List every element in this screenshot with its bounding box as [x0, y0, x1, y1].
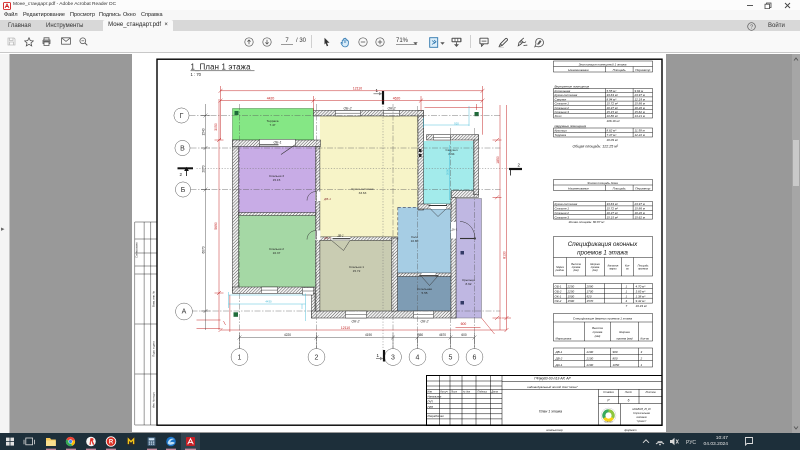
svg-text:1: 1: [640, 363, 642, 367]
svg-text:Инв. № подл.: Инв. № подл.: [151, 392, 155, 408]
svg-text:ОБ-1: ОБ-1: [554, 285, 561, 289]
svg-text:Жилая площадь дома: Жилая площадь дома: [586, 181, 618, 185]
svg-text:2070: 2070: [201, 165, 205, 172]
svg-text:Спецификация дверных проемов 1: Спецификация дверных проемов 1 этажа: [572, 317, 632, 321]
svg-text:1570: 1570: [586, 299, 593, 303]
svg-text:ДВ-1: ДВ-1: [323, 197, 331, 201]
svg-text:3050: 3050: [214, 123, 218, 131]
svg-text:проема (мм): проема (мм): [616, 337, 632, 341]
svg-text:(мм): (мм): [592, 269, 597, 272]
svg-text:Б: Б: [180, 187, 185, 194]
svg-text:ОБ-2: ОБ-2: [343, 106, 351, 110]
svg-text:Спальня 3: Спальня 3: [554, 215, 569, 219]
svg-text:?: ?: [750, 24, 753, 30]
svg-text:ОК-1: ОК-1: [554, 294, 561, 298]
svg-text:4220: 4220: [283, 333, 290, 337]
svg-text:15.72 м²: 15.72 м²: [606, 207, 618, 211]
svg-text:4670: 4670: [438, 333, 445, 337]
svg-text:4.70 м²: 4.70 м²: [635, 285, 646, 289]
svg-text:марки: марки: [609, 268, 617, 271]
svg-text:3.83 м²: 3.83 м²: [635, 289, 646, 293]
svg-text:Подп. и дата: Подп. и дата: [151, 341, 155, 357]
svg-text:Периметр: Периметр: [635, 186, 650, 190]
svg-text:План 1 этажа: План 1 этажа: [538, 410, 561, 414]
svg-text:5.55: 5.55: [421, 291, 427, 295]
svg-text:R: R: [109, 440, 114, 446]
svg-text:900: 900: [612, 350, 617, 354]
svg-text:во: во: [626, 268, 629, 271]
svg-text:Внутренние помещения: Внутренние помещения: [554, 84, 589, 88]
svg-text:4190: 4190: [364, 333, 371, 337]
svg-text:Площадь: Площадь: [612, 186, 625, 190]
svg-text:проемов 1 этажа: проемов 1 этажа: [577, 250, 628, 257]
svg-text:800: 800: [612, 357, 617, 361]
svg-text:19.33 м²: 19.33 м²: [635, 304, 647, 308]
svg-text:Спецификация оконных: Спецификация оконных: [567, 241, 637, 248]
svg-text:33.63 м²: 33.63 м²: [606, 202, 618, 206]
svg-text:8130: 8130: [502, 251, 506, 259]
svg-text:Лист: Лист: [623, 390, 632, 394]
svg-text:15.86 м: 15.86 м: [634, 207, 644, 211]
svg-text:1050: 1050: [612, 363, 619, 367]
svg-text:16.20 м: 16.20 м: [634, 211, 644, 215]
svg-text:1.38 м²: 1.38 м²: [635, 294, 646, 298]
svg-text:"проект": "проект": [636, 421, 646, 423]
svg-text:9.42 м²: 9.42 м²: [635, 299, 646, 303]
svg-text:3: 3: [640, 350, 642, 354]
svg-text:6: 6: [472, 355, 476, 362]
svg-text:Кухня-гостиная: Кухня-гостиная: [554, 202, 577, 206]
svg-text:16.09 м²: 16.09 м²: [606, 138, 618, 142]
svg-text:ДВ-1: ДВ-1: [554, 350, 562, 354]
svg-text:компания: компания: [636, 417, 647, 419]
svg-text:ОК-2: ОК-2: [387, 106, 395, 110]
svg-text:920: 920: [586, 294, 591, 298]
svg-text:Площадь: Площадь: [612, 68, 625, 72]
svg-text:23.97 м: 23.97 м: [633, 202, 644, 206]
svg-text:6: 6: [627, 398, 629, 402]
svg-text:3000: 3000: [445, 168, 449, 175]
svg-text:1850: 1850: [495, 156, 499, 164]
svg-text:Жилая площадь: 80.87 м²: Жилая площадь: 80.87 м²: [567, 220, 605, 224]
svg-text:Подпись: Подпись: [477, 391, 487, 394]
svg-text:Дата: Дата: [490, 391, 498, 394]
svg-text:Листов: Листов: [644, 390, 656, 394]
svg-text:Кол-во: Кол-во: [640, 337, 649, 341]
svg-text:Ширина: Ширина: [619, 330, 630, 334]
svg-text:1540: 1540: [201, 128, 205, 135]
svg-text:формат: формат: [624, 428, 637, 432]
svg-text:950: 950: [417, 333, 423, 337]
svg-text:2100: 2100: [585, 357, 593, 361]
svg-text:2100: 2100: [585, 363, 593, 367]
svg-text:15.15: 15.15: [272, 178, 280, 182]
svg-text:компьютер: компьютер: [546, 428, 563, 432]
svg-text:Терраса: Терраса: [554, 133, 566, 137]
svg-text:11.58 м: 11.58 м: [634, 129, 644, 133]
svg-text:12.22 м: 12.22 м: [634, 133, 644, 137]
svg-text:16.37 м²: 16.37 м²: [606, 211, 618, 215]
svg-text:Строительная: Строительная: [633, 413, 651, 415]
svg-text:Крыльцо: Крыльцо: [554, 129, 567, 133]
svg-text:Лист: Лист: [450, 391, 457, 394]
svg-text:6070: 6070: [201, 246, 205, 253]
svg-text:мб3а5015_25_03: мб3а5015_25_03: [632, 409, 651, 411]
svg-text:4620: 4620: [392, 96, 400, 100]
svg-text:(мм): (мм): [594, 334, 600, 338]
svg-text:Г: Г: [179, 113, 183, 120]
svg-text:Спальня 1: Спальня 1: [554, 207, 569, 211]
svg-text:15.72: 15.72: [352, 269, 360, 273]
svg-text:1500: 1500: [567, 294, 574, 298]
svg-text:ОК-2: ОК-2: [351, 320, 359, 324]
svg-text:Разработал: Разработал: [427, 414, 444, 418]
svg-text:Кол.уч: Кол.уч: [440, 391, 448, 394]
svg-text:13.21 м: 13.21 м: [634, 114, 644, 118]
svg-text:4: 4: [625, 299, 627, 303]
svg-text:В: В: [180, 146, 185, 153]
svg-text:2100: 2100: [585, 350, 593, 354]
svg-text:ГФ(м)ВЗ-03-п13-АР, АР: ГФ(м)ВЗ-03-п13-АР, АР: [534, 377, 571, 381]
svg-text:ДН-1: ДН-1: [554, 363, 562, 367]
svg-text:600: 600: [460, 322, 466, 326]
svg-text:106.16 м²: 106.16 м²: [606, 119, 620, 123]
svg-text:12110: 12110: [352, 87, 361, 91]
svg-text:ДВ-2: ДВ-2: [554, 357, 562, 361]
svg-text:1500: 1500: [567, 299, 574, 303]
svg-text:8.62: 8.62: [465, 282, 471, 286]
svg-text:8.62 м²: 8.62 м²: [606, 129, 617, 133]
svg-text:А: А: [181, 309, 186, 316]
svg-text:Начальник: Начальник: [427, 395, 442, 399]
svg-text:Спальня 2: Спальня 2: [554, 211, 569, 215]
svg-text:2: 2: [179, 172, 182, 177]
svg-text:№ док: № док: [463, 391, 471, 394]
svg-text:Взам. инв. №: Взам. инв. №: [151, 291, 155, 307]
svg-text:Холл: Холл: [553, 114, 561, 118]
svg-text:2090: 2090: [585, 285, 593, 289]
svg-text:2: 2: [517, 163, 520, 168]
svg-text:1 : 70: 1 : 70: [190, 72, 201, 77]
svg-text:3: 3: [391, 355, 395, 362]
svg-text:ОБ-2: ОБ-2: [554, 289, 561, 293]
svg-text:Наименование: Наименование: [568, 68, 589, 72]
svg-text:15.62 м: 15.62 м: [634, 215, 644, 219]
svg-text:1_План 1 этажа: 1_План 1 этажа: [190, 63, 251, 72]
svg-text:РУС: РУС: [686, 440, 696, 446]
svg-text:7.47: 7.47: [269, 123, 275, 127]
svg-text:Изм: Изм: [427, 391, 432, 394]
svg-text:Экспликация помещений 1 этажа: Экспликация помещений 1 этажа: [578, 62, 626, 66]
svg-text:(мм): (мм): [573, 269, 578, 272]
svg-text:4420: 4420: [266, 96, 274, 100]
svg-text:2: 2: [314, 355, 318, 362]
svg-text:ГИП: ГИП: [427, 405, 434, 409]
svg-text:разбив.: разбив.: [554, 269, 564, 272]
svg-text:1: 1: [375, 88, 378, 93]
svg-text:12110: 12110: [340, 326, 349, 330]
svg-text:Р: Р: [607, 398, 610, 402]
svg-text:4: 4: [415, 355, 419, 362]
svg-text:1: 1: [625, 285, 627, 289]
svg-text:проемов: проемов: [638, 268, 649, 271]
svg-text:33.63: 33.63: [358, 191, 366, 195]
svg-text:10.80 м²: 10.80 м²: [606, 114, 618, 118]
svg-text:Согласовано: Согласовано: [134, 242, 138, 258]
svg-text:15.15 м²: 15.15 м²: [606, 215, 618, 219]
svg-text:1: 1: [625, 289, 627, 293]
svg-text:ОБ-1: ОБ-1: [273, 141, 281, 145]
svg-text:Стадия: Стадия: [603, 390, 614, 394]
svg-text:2: 2: [639, 357, 642, 361]
svg-text:5: 5: [448, 355, 452, 362]
svg-text:ДВ-2: ДВ-2: [336, 234, 343, 238]
svg-text:2250: 2250: [566, 289, 574, 293]
svg-text:4430: 4430: [265, 300, 272, 304]
svg-text:7.47 м²: 7.47 м²: [606, 133, 617, 137]
svg-text:5690: 5690: [214, 222, 218, 230]
svg-text:1: 1: [625, 294, 627, 298]
svg-text:ОК-2: ОК-2: [554, 299, 561, 303]
svg-text:ОК-2: ОК-2: [420, 320, 428, 324]
svg-text:МОНОЛИТ: МОНОЛИТ: [604, 421, 612, 423]
svg-text:Наружные помещения: Наружные помещения: [554, 124, 586, 128]
svg-text:ДН-1: ДН-1: [450, 228, 458, 232]
svg-text:Общая площадь: 122.25 м²: Общая площадь: 122.25 м²: [572, 145, 618, 149]
svg-text:16.37: 16.37: [272, 251, 280, 255]
svg-text:Маркировка: Маркировка: [555, 337, 571, 341]
svg-text:600: 600: [461, 333, 467, 337]
svg-text:Периметр: Периметр: [635, 68, 650, 72]
svg-text:1700: 1700: [586, 289, 593, 293]
svg-text:7: 7: [625, 304, 627, 308]
svg-text:1: 1: [237, 355, 241, 362]
svg-text:ДВ-1: ДВ-1: [323, 236, 331, 240]
svg-text:Наименование: Наименование: [568, 186, 589, 190]
svg-text:920: 920: [454, 121, 459, 125]
svg-text:1: 1: [376, 353, 379, 358]
svg-text:ГАП: ГАП: [427, 400, 433, 404]
svg-text:2250: 2250: [566, 285, 574, 289]
svg-text:индивидуальный жилой дом "моне: индивидуальный жилой дом "моне": [527, 385, 579, 389]
